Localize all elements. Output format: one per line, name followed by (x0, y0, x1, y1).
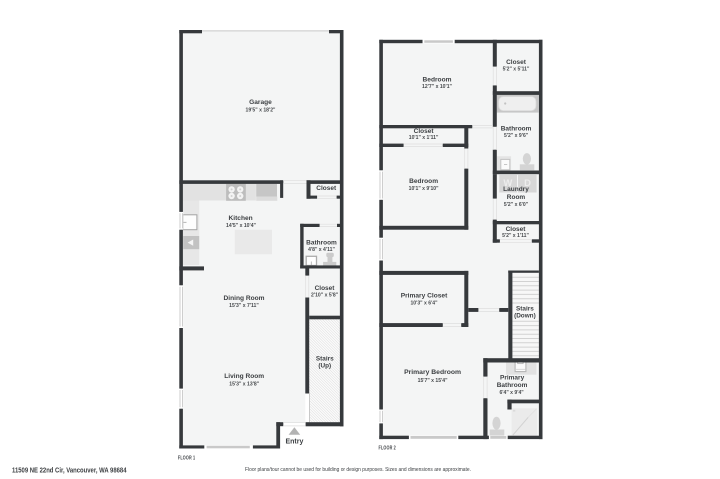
svg-text:Entry: Entry (285, 439, 303, 446)
svg-text:4'8" x 4'11": 4'8" x 4'11" (308, 247, 335, 253)
svg-text:5'2" x 9'6": 5'2" x 9'6" (504, 133, 529, 139)
svg-text:(Up): (Up) (318, 363, 331, 370)
svg-text:Primary: Primary (500, 375, 525, 382)
svg-text:Closet: Closet (316, 185, 337, 192)
svg-text:Kitchen: Kitchen (229, 215, 253, 222)
svg-text:Primary Closet: Primary Closet (401, 293, 448, 300)
svg-text:Closet: Closet (315, 285, 336, 292)
svg-text:Closet: Closet (506, 226, 527, 233)
svg-text:10'3" x 6'4": 10'3" x 6'4" (410, 301, 438, 307)
svg-text:5'2" x 1'11": 5'2" x 1'11" (502, 233, 529, 239)
svg-text:Closet: Closet (506, 59, 527, 66)
svg-text:Primary Bedroom: Primary Bedroom (404, 369, 461, 376)
svg-text:10'1" x 9'10": 10'1" x 9'10" (409, 186, 439, 192)
svg-text:5'2" x 6'0": 5'2" x 6'0" (504, 202, 529, 208)
svg-text:5'2" x 5'11": 5'2" x 5'11" (503, 67, 530, 73)
svg-text:Bathroom: Bathroom (306, 239, 337, 246)
svg-text:11509 NE 22nd Cir, Vancouver,: 11509 NE 22nd Cir, Vancouver, WA 98684 (12, 465, 127, 474)
svg-text:6'4" x 9'4": 6'4" x 9'4" (499, 390, 524, 396)
svg-text:Closet: Closet (414, 128, 435, 135)
svg-text:2'10" x 5'8": 2'10" x 5'8" (311, 293, 339, 299)
svg-text:(Down): (Down) (514, 313, 536, 320)
svg-text:Bedroom: Bedroom (423, 76, 452, 83)
svg-text:Stairs: Stairs (316, 355, 334, 362)
svg-text:Bathroom: Bathroom (501, 125, 532, 132)
svg-text:FLOOR 1: FLOOR 1 (178, 456, 195, 462)
svg-text:19'5" x 18'2": 19'5" x 18'2" (246, 107, 276, 113)
svg-text:Room: Room (507, 194, 526, 201)
svg-text:14'5" x 10'4": 14'5" x 10'4" (226, 223, 256, 229)
svg-text:Bedroom: Bedroom (409, 178, 438, 185)
svg-text:Garage: Garage (249, 99, 272, 106)
svg-text:Laundry: Laundry (503, 186, 529, 193)
svg-text:15'3" x 7'11": 15'3" x 7'11" (229, 303, 259, 309)
svg-text:Bathroom: Bathroom (497, 382, 528, 389)
svg-text:10'1" x 1'11": 10'1" x 1'11" (409, 135, 439, 141)
svg-text:FLOOR 2: FLOOR 2 (379, 446, 396, 452)
svg-text:Dining Room: Dining Room (223, 295, 264, 302)
svg-text:Living Room: Living Room (224, 373, 264, 380)
svg-text:Stairs: Stairs (516, 305, 534, 312)
svg-text:15'7" x 15'4": 15'7" x 15'4" (418, 378, 448, 384)
svg-text:Floor plans/tour cannot be use: Floor plans/tour cannot be used for buil… (245, 467, 471, 473)
svg-text:12'7" x 10'1": 12'7" x 10'1" (422, 84, 452, 90)
svg-text:15'3" x 13'8": 15'3" x 13'8" (229, 381, 259, 387)
